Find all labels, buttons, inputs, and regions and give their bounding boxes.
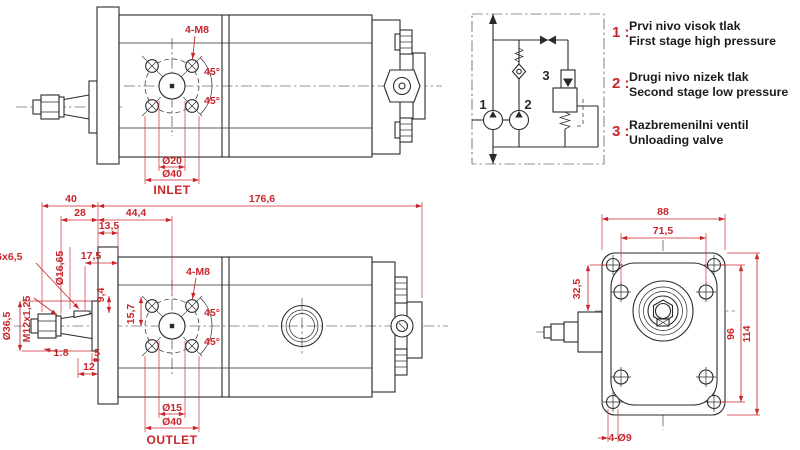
dim-17-5: 17,5 bbox=[81, 250, 102, 262]
dim-dia40-side: Ø40 bbox=[162, 416, 182, 428]
dim-dia40-top: Ø40 bbox=[162, 168, 182, 180]
side-view-rear-cover bbox=[372, 262, 422, 392]
legend-line1-sl: Prvi nivo visok tlak bbox=[629, 19, 741, 33]
legend-line2-sl: Drugi nivo nizek tlak bbox=[629, 70, 749, 84]
front-view-valve-screw bbox=[544, 312, 602, 352]
dim-taper: 1:8 bbox=[53, 347, 68, 359]
dim-40: 40 bbox=[65, 193, 77, 205]
dim-angle-upper-top: 45° bbox=[204, 66, 220, 78]
dim-9-4: 9,4 bbox=[95, 288, 107, 303]
shaft-keyway bbox=[74, 311, 90, 318]
legend-num-1: 1 : bbox=[612, 24, 630, 41]
dim-angle-lower-top: 45° bbox=[204, 95, 220, 107]
dim-dia-16-65: Ø16,65 bbox=[54, 251, 66, 286]
dim-bolt-pattern-side: 4-M8 bbox=[186, 266, 210, 278]
legend-item-2: 2 : Drugi nivo nizek tlak Second stage l… bbox=[612, 70, 788, 99]
schematic-pump1-label: 1 bbox=[479, 97, 486, 112]
dim-bolt-pattern-top: 4-M8 bbox=[185, 24, 209, 36]
flow-arrow-up bbox=[489, 14, 497, 24]
dim-32-5: 32,5 bbox=[571, 279, 583, 300]
side-view: 40 176,6 28 44,4 13,5 17,5 Ø16,65 3,16x6… bbox=[0, 193, 448, 447]
legend-num-2: 2 : bbox=[612, 75, 630, 92]
dim-15-7: 15,7 bbox=[125, 304, 137, 325]
side-view-dimensions: 40 176,6 28 44,4 13,5 17,5 Ø16,65 3,16x6… bbox=[0, 193, 422, 447]
front-view-shaft-end bbox=[633, 281, 693, 341]
side-view-body bbox=[98, 247, 372, 404]
dim-13-5: 13,5 bbox=[99, 220, 120, 232]
dim-dia15: Ø15 bbox=[162, 402, 182, 414]
schematic-valve-label: 3 bbox=[542, 68, 549, 83]
dim-71-5: 71,5 bbox=[653, 225, 674, 237]
dim-thread: M12x1,25 bbox=[21, 295, 33, 342]
legend-item-3: 3 : Razbremenilni ventil Unloading valve bbox=[612, 118, 749, 147]
dim-key: 3,16x6,5 bbox=[0, 251, 23, 263]
schematic-pump2-label: 2 bbox=[524, 97, 531, 112]
pump-1-symbol bbox=[484, 111, 503, 130]
shutoff-valve-symbol bbox=[540, 36, 556, 45]
dim-176-6: 176,6 bbox=[249, 193, 275, 205]
top-view-rear-cover bbox=[372, 20, 425, 154]
legend: 1 : Prvi nivo visok tlak First stage hig… bbox=[612, 19, 788, 147]
dim-12: 12 bbox=[83, 361, 95, 373]
dim-28: 28 bbox=[74, 207, 86, 219]
legend-line3-en: Unloading valve bbox=[629, 133, 723, 147]
port-bolt-symbol bbox=[146, 340, 159, 353]
legend-num-3: 3 : bbox=[612, 123, 630, 140]
dim-88: 88 bbox=[657, 206, 669, 218]
port-bolt-symbol bbox=[146, 100, 159, 113]
dim-5: 5 bbox=[94, 347, 100, 359]
unloading-valve-symbol bbox=[553, 70, 583, 147]
legend-line1-en: First stage high pressure bbox=[629, 34, 776, 48]
top-view: 4-M8 45° 45° Ø20 Ø40 INLET bbox=[16, 7, 442, 197]
front-view: 88 71,5 32,5 96 114 4-Ø9 bbox=[536, 206, 760, 444]
flow-arrow-down bbox=[489, 154, 497, 164]
hydraulic-schematic: 1 2 3 bbox=[472, 14, 604, 164]
top-view-inlet-port bbox=[142, 38, 212, 136]
port-bolt-symbol bbox=[186, 300, 199, 313]
pump-2-symbol bbox=[510, 111, 529, 130]
legend-line2-en: Second stage low pressure bbox=[629, 85, 788, 99]
schematic-boundary bbox=[472, 14, 604, 164]
dim-dia-36-5: Ø36,5 bbox=[1, 312, 13, 341]
dim-114: 114 bbox=[741, 325, 753, 342]
dim-angle-upper-side: 45° bbox=[204, 307, 220, 319]
pump-drawing-svg: 4-M8 45° 45° Ø20 Ø40 INLET bbox=[0, 0, 800, 450]
side-view-shaft bbox=[31, 301, 100, 351]
technical-drawing-page: 4-M8 45° 45° Ø20 Ø40 INLET bbox=[0, 0, 800, 450]
port-bolt-symbol bbox=[146, 60, 159, 73]
outlet-label: OUTLET bbox=[147, 433, 198, 447]
dim-dia20: Ø20 bbox=[162, 155, 182, 167]
side-view-outlet-port bbox=[142, 280, 212, 374]
port-bolt-symbol bbox=[186, 100, 199, 113]
dim-44-4: 44,4 bbox=[126, 207, 147, 219]
port-bolt-symbol bbox=[186, 60, 199, 73]
legend-item-1: 1 : Prvi nivo visok tlak First stage hig… bbox=[612, 19, 776, 48]
dim-angle-lower-side: 45° bbox=[204, 336, 220, 348]
legend-line3-sl: Razbremenilni ventil bbox=[629, 118, 749, 132]
port-bolt-symbol bbox=[146, 300, 159, 313]
inlet-label: INLET bbox=[153, 183, 190, 197]
dim-4-dia9: 4-Ø9 bbox=[608, 432, 632, 444]
port-bolt-symbol bbox=[186, 340, 199, 353]
dim-96: 96 bbox=[725, 328, 737, 340]
